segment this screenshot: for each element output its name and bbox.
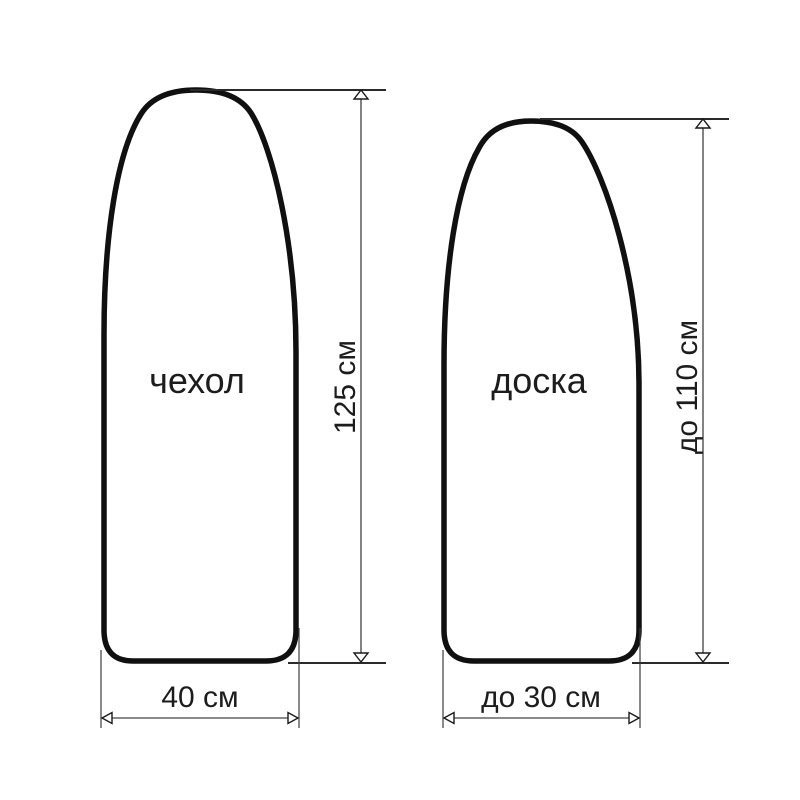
arrow-up-icon	[354, 90, 368, 99]
board-figure: доска до 110 см до 30 см	[443, 119, 729, 728]
board-length-value: до 110 см	[671, 320, 704, 454]
arrow-down-icon	[354, 653, 368, 662]
cover-width-value: 40 см	[161, 681, 238, 714]
arrow-left-icon	[444, 713, 454, 724]
arrow-right-icon	[629, 713, 639, 724]
board-width-value: до 30 см	[481, 681, 601, 714]
diagram-canvas: чехол 125 см 40 см доска до 110 см	[0, 0, 800, 800]
cover-label: чехол	[149, 360, 245, 401]
board-label: доска	[491, 360, 588, 401]
ironing-board-size-diagram: чехол 125 см 40 см доска до 110 см	[0, 0, 800, 800]
arrow-right-icon	[288, 713, 298, 724]
arrow-up-icon	[696, 119, 710, 128]
cover-figure: чехол 125 см 40 см	[101, 90, 386, 728]
arrow-left-icon	[102, 713, 112, 724]
cover-length-value: 125 см	[329, 340, 362, 434]
arrow-down-icon	[696, 653, 710, 662]
